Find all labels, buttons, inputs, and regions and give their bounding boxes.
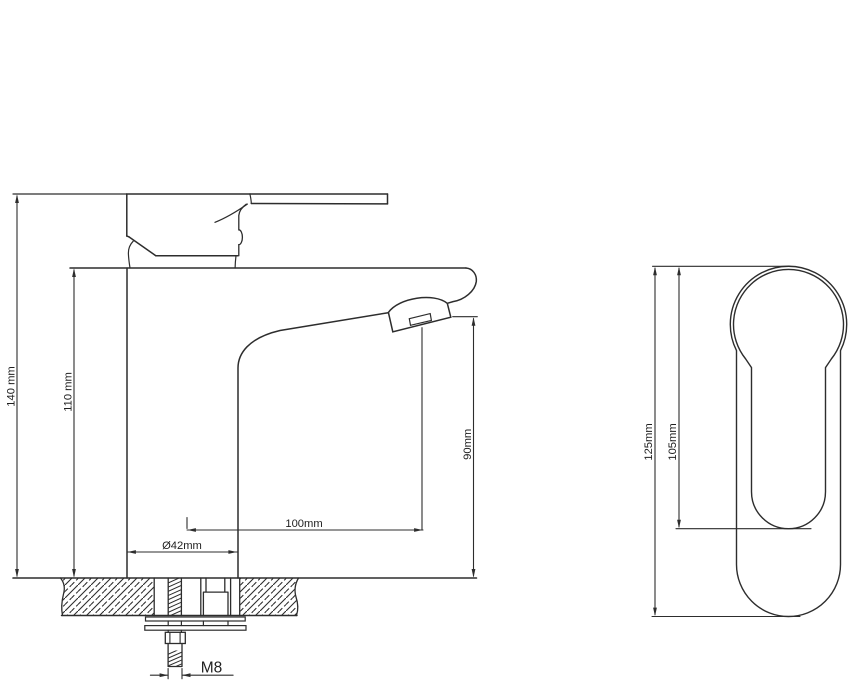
- svg-text:M8: M8: [201, 660, 223, 677]
- svg-text:Ø42mm: Ø42mm: [162, 540, 202, 552]
- svg-text:100mm: 100mm: [285, 518, 322, 530]
- svg-text:90mm: 90mm: [462, 429, 474, 460]
- svg-text:105mm: 105mm: [667, 423, 679, 460]
- svg-text:125mm: 125mm: [643, 423, 655, 460]
- svg-text:140 mm: 140 mm: [5, 366, 17, 406]
- svg-text:110 mm: 110 mm: [63, 372, 75, 412]
